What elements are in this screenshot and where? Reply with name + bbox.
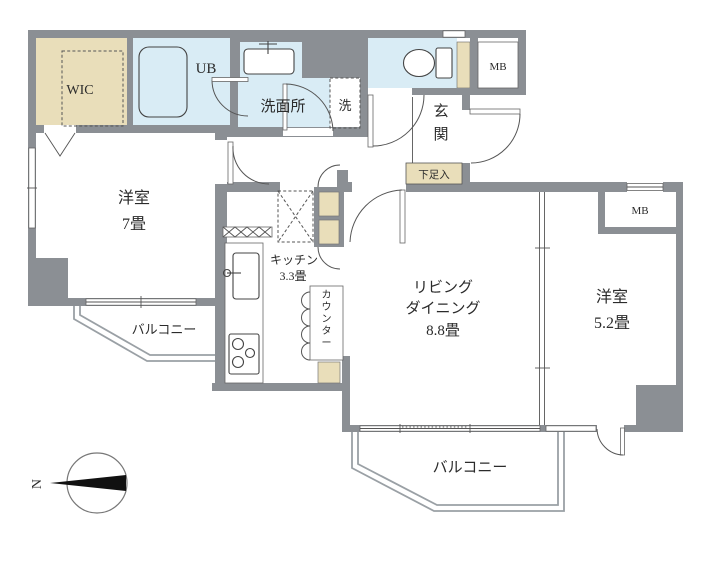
toilet-door-arc — [373, 95, 424, 146]
counter-arc-3 — [302, 326, 311, 343]
living-label-3: 8.8畳 — [426, 323, 460, 339]
wic-folding-door-icon — [45, 133, 75, 156]
entrance-door-arc — [471, 114, 520, 163]
wic-room — [36, 38, 127, 126]
counter-arc-4 — [302, 343, 311, 360]
living-label-2: ダイニング — [405, 300, 480, 317]
washing-machine-label: 洗 — [338, 98, 351, 113]
balcony-door-arc — [597, 429, 623, 455]
kitchen-sink-icon — [233, 253, 259, 299]
bedroom-east-label-1: 洋室 — [596, 288, 628, 306]
floor-plan: N WIC UB 洗面所 洗 MB 玄関 下足入 洋室 7畳 キッチン 3.3畳… — [0, 0, 708, 577]
unit-bath-label: UB — [196, 61, 217, 77]
bedroom-west-door-arc — [233, 146, 269, 184]
living-door-leaf — [400, 190, 405, 243]
compass: N — [30, 453, 127, 513]
bath-door-leaf — [212, 78, 248, 82]
compass-needle-icon — [50, 475, 126, 491]
meter-box-right-label: MB — [631, 205, 648, 217]
bedroom-east-label-2: 5.2畳 — [594, 315, 630, 332]
entrance-door-leaf — [470, 109, 520, 114]
entrance-label: 玄関 — [433, 103, 448, 143]
counter-arc-1 — [302, 292, 311, 309]
toilet-icon — [404, 48, 453, 78]
toilet-cabinet — [457, 42, 470, 88]
shoe-cabinet-label: 下足入 — [418, 169, 450, 181]
toilet-door-leaf — [368, 95, 373, 147]
counter-base-cabinet — [318, 362, 340, 383]
unit-bath-room — [133, 38, 230, 126]
washroom-label: 洗面所 — [260, 98, 305, 115]
floor-plan-svg: N WIC UB 洗面所 洗 MB 玄関 下足入 洋室 7畳 キッチン 3.3畳… — [0, 0, 708, 577]
meter-box-top-label: MB — [489, 61, 506, 73]
bedroom-west-label-2: 7畳 — [122, 216, 146, 233]
balcony-west-label: バルコニー — [132, 322, 197, 337]
living-label-1: リビング — [413, 279, 473, 296]
window-bedroom-east — [546, 426, 596, 431]
kitchen-label-2: 3.3畳 — [279, 269, 306, 283]
refrigerator-space-icon — [278, 191, 313, 242]
counter-label: カウンター — [322, 289, 332, 349]
kitchen-label-1: キッチン — [270, 253, 318, 267]
living-door-arc — [350, 190, 402, 242]
compass-north-label: N — [30, 479, 45, 489]
window-top-wall — [443, 31, 465, 37]
balcony-south-label: バルコニー — [433, 460, 508, 476]
sliding-partition — [535, 192, 550, 425]
wic-label: WIC — [66, 83, 93, 98]
counter-arc-2 — [302, 309, 311, 326]
hatch-window-band — [223, 227, 272, 237]
balcony-door-leaf — [621, 428, 625, 455]
bedroom-west-door-leaf — [228, 142, 233, 184]
bedroom-west-label-1: 洋室 — [118, 189, 150, 207]
